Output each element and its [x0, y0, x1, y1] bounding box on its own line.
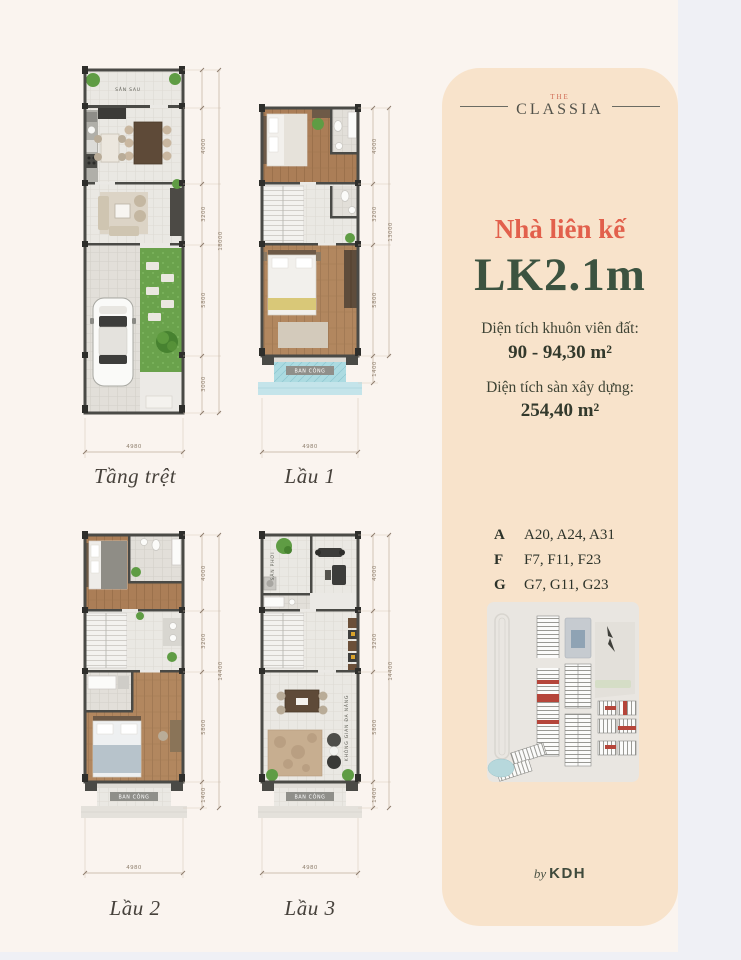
desk: [170, 720, 183, 752]
bedroom-4: [85, 673, 183, 783]
floorplan-floor1: BAN CÔNG 4000 3200 5800 1400 13000 4980: [245, 60, 405, 485]
back-yard: SÂN SAU: [85, 70, 183, 108]
info-panel: THE CLASSIA Nhà liên kế LK2.1m Diện tích…: [442, 68, 678, 926]
floorplan-ground: SÂN SAU: [55, 60, 235, 485]
dim-width: 4980: [302, 444, 318, 450]
drying-yard-label: SÂN PHƠI: [269, 552, 276, 581]
pond: [488, 759, 514, 777]
tv-cabinet: [170, 188, 183, 236]
dim-5800: 5800: [372, 719, 378, 735]
unit-row-g: G G7, G11, G23: [494, 577, 615, 594]
dim-5800: 5800: [372, 292, 378, 308]
dim-1400: 1400: [201, 787, 207, 803]
dim-total: 14400: [388, 661, 394, 681]
ground-floor-label: Tầng trệt: [55, 464, 215, 489]
floor-area-label: Diện tích sàn xây dựng:: [442, 379, 678, 397]
brochure-page: SÂN SAU: [0, 0, 741, 960]
balcony-label: BAN CÔNG: [119, 794, 150, 801]
dim-5800: 5800: [201, 719, 207, 735]
floor3-label: Lầu 3: [230, 896, 390, 921]
balcony-label: BAN CÔNG: [295, 794, 326, 801]
drying-yard: SÂN PHƠI: [262, 535, 310, 593]
logo-rule-right: [612, 106, 660, 107]
brand-name: CLASSIA: [516, 102, 604, 118]
dining-table: [125, 122, 172, 164]
row-block-left: [536, 616, 560, 756]
dim-width: 4980: [126, 865, 142, 871]
dim-3000: 3000: [201, 376, 207, 392]
site-map-svg: [487, 602, 639, 782]
dim-total: 14400: [218, 661, 224, 681]
land-area-value: 90 - 94,30 m²: [442, 342, 678, 364]
multipurpose-label: KHÔNG GIAN ĐA NĂNG: [343, 695, 350, 761]
back-yard-label: SÂN SAU: [115, 86, 141, 93]
dim-4000: 4000: [372, 138, 378, 154]
unit-codes-g: G7, G11, G23: [524, 577, 608, 594]
staircase: [262, 612, 358, 671]
site-map: [487, 602, 639, 782]
balcony: BAN CÔNG: [258, 356, 362, 395]
floor-area-value: 254,40 m²: [442, 400, 678, 422]
unit-list: A A20, A24, A31 F F7, F11, F23 G G7, G11…: [494, 527, 615, 602]
dim-3200: 3200: [372, 633, 378, 649]
dim-4000: 4000: [201, 565, 207, 581]
row-blocks-center: [565, 664, 591, 766]
staircase: [85, 612, 183, 671]
developer-byline: byKDH: [442, 865, 678, 883]
land-area-label: Diện tích khuôn viên đất:: [442, 320, 678, 338]
kitchen-island: [98, 108, 126, 119]
bathroom-4: [262, 593, 310, 609]
gym-corner: [310, 535, 358, 593]
logo-rule-left: [460, 106, 508, 107]
dim-4000: 4000: [372, 565, 378, 581]
dim-5800: 5800: [201, 292, 207, 308]
dim-4000: 4000: [201, 138, 207, 154]
dim-1400: 1400: [372, 787, 378, 803]
unit-codes-a: A20, A24, A31: [524, 527, 615, 544]
dim-total: 13000: [388, 222, 394, 242]
balcony: BAN CÔNG: [258, 782, 362, 818]
unit-row-a: A A20, A24, A31: [494, 527, 615, 544]
balcony-label: BAN CÔNG: [295, 368, 326, 375]
floor1-label: Lầu 1: [230, 464, 390, 489]
balcony: BAN CÔNG: [81, 782, 187, 818]
dim-3200: 3200: [201, 206, 207, 222]
unit-group-g: G: [494, 577, 524, 594]
kdh-logo: KDH: [549, 865, 586, 882]
multipurpose-room: KHÔNG GIAN ĐA NĂNG: [262, 673, 358, 783]
dim-1400: 1400: [372, 361, 378, 377]
brand-logo: THE CLASSIA: [442, 94, 678, 118]
floor2-label: Lầu 2: [55, 896, 215, 921]
dim-3200: 3200: [201, 633, 207, 649]
car: [90, 298, 136, 386]
kitchen-dining: [85, 108, 183, 184]
product-title: LK2.1m: [442, 248, 678, 302]
unit-row-f: F F7, F11, F23: [494, 552, 615, 569]
unit-group-a: A: [494, 527, 524, 544]
floorplan-floor2: BAN CÔNG 4000 3200 5800 1400 14400 4980: [55, 525, 235, 925]
coffee-table: [115, 204, 130, 218]
dim-total: 18000: [218, 231, 224, 251]
dim-width: 4980: [126, 444, 142, 450]
master-bedroom: [262, 246, 358, 357]
brand-the: THE: [550, 94, 570, 101]
dim-width: 4980: [302, 865, 318, 871]
bathroom-1: [330, 108, 358, 155]
green-strip: [595, 680, 631, 688]
byline-by: by: [534, 866, 546, 881]
living-room: [85, 179, 183, 243]
unit-codes-f: F7, F11, F23: [524, 552, 601, 569]
front-garden: [140, 248, 183, 413]
clubhouse: [565, 618, 591, 658]
bathroom-3: [128, 535, 183, 584]
dim-3200: 3200: [372, 206, 378, 222]
product-subtitle: Nhà liên kế: [442, 214, 678, 245]
unit-group-f: F: [494, 552, 524, 569]
floorplan-floor3: SÂN PHƠI: [245, 525, 405, 925]
